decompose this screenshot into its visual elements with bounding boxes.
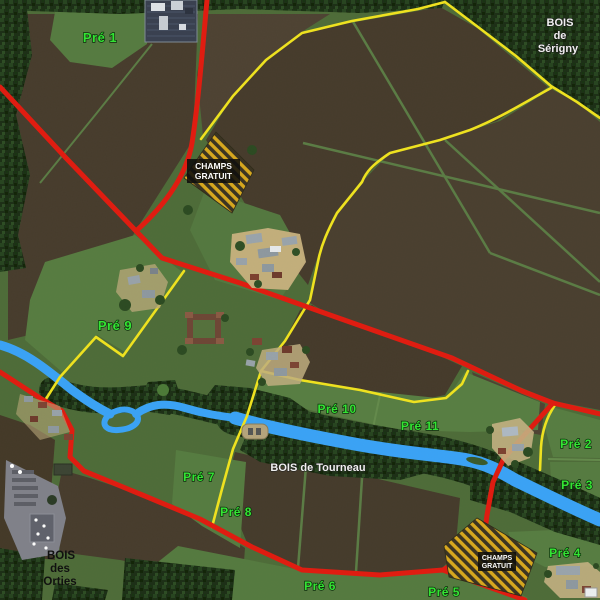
forest-label-orties-line1: BOIS bbox=[47, 550, 75, 562]
tree bbox=[302, 346, 310, 354]
forest-label-orties-line2: des bbox=[50, 563, 70, 575]
building bbox=[216, 338, 224, 344]
building bbox=[274, 368, 287, 376]
building bbox=[512, 444, 524, 451]
tree bbox=[292, 248, 300, 256]
field-label-pre-9: Pré 9 bbox=[98, 318, 132, 333]
building bbox=[290, 362, 299, 368]
tree bbox=[486, 426, 494, 434]
solar-farm bbox=[145, 0, 197, 42]
forest-label-serigny-line3: Sérigny bbox=[538, 43, 579, 55]
farm-map: CHAMPS GRATUIT CHAMPS GRATUIT Pré 1 Pré … bbox=[0, 0, 600, 600]
field-label-pre-6: Pré 6 bbox=[304, 579, 336, 593]
tree bbox=[177, 345, 187, 355]
tree bbox=[183, 205, 193, 215]
barn-dark bbox=[54, 464, 72, 475]
field-label-pre-2: Pré 2 bbox=[560, 437, 592, 451]
round-tree bbox=[157, 384, 169, 396]
sign-line: CHAMPS bbox=[195, 161, 232, 171]
building bbox=[566, 580, 578, 589]
field-label-pre-4: Pré 4 bbox=[549, 546, 581, 560]
building bbox=[159, 16, 168, 30]
building bbox=[30, 416, 38, 422]
building bbox=[171, 1, 183, 10]
building-white bbox=[585, 588, 597, 597]
sign-line: CHAMPS bbox=[482, 555, 513, 562]
tree bbox=[258, 378, 266, 386]
tree bbox=[246, 348, 254, 356]
building bbox=[185, 338, 193, 344]
barn bbox=[236, 258, 247, 265]
sign-line: GRATUIT bbox=[195, 171, 233, 181]
tree bbox=[593, 563, 599, 569]
paddock bbox=[242, 424, 268, 439]
tree bbox=[221, 314, 229, 322]
forest-label-serigny-line1: BOIS bbox=[547, 17, 574, 29]
building bbox=[502, 426, 519, 436]
field-label-pre-11: Pré 11 bbox=[401, 419, 439, 433]
tree bbox=[235, 241, 245, 251]
building bbox=[266, 352, 278, 360]
forest-label-tourneau: BOIS de Tourneau bbox=[270, 462, 365, 474]
building bbox=[270, 246, 281, 252]
tree bbox=[155, 295, 165, 305]
building bbox=[185, 312, 193, 318]
tree bbox=[254, 280, 262, 288]
hamlet-northwest bbox=[116, 264, 168, 312]
tree bbox=[47, 495, 57, 505]
building bbox=[38, 402, 47, 408]
tree bbox=[544, 570, 552, 578]
forest-label-orties-line3: Orties bbox=[43, 576, 76, 588]
building bbox=[250, 274, 259, 280]
tree bbox=[119, 299, 131, 311]
building bbox=[272, 272, 282, 278]
tree bbox=[511, 460, 519, 468]
building bbox=[150, 268, 158, 274]
building bbox=[179, 24, 186, 30]
building bbox=[24, 396, 33, 402]
building bbox=[151, 3, 165, 11]
field-label-pre-5: Pré 5 bbox=[428, 585, 460, 599]
field-label-pre-7: Pré 7 bbox=[183, 470, 215, 484]
building bbox=[30, 514, 54, 542]
tree bbox=[523, 447, 533, 457]
building bbox=[185, 8, 193, 14]
tree bbox=[136, 264, 144, 272]
field-label-pre-8: Pré 8 bbox=[220, 505, 252, 519]
barn bbox=[262, 264, 274, 272]
building bbox=[498, 448, 506, 454]
building bbox=[252, 338, 262, 345]
sign-line: GRATUIT bbox=[482, 563, 513, 570]
building bbox=[52, 410, 62, 416]
building bbox=[282, 346, 292, 353]
tree bbox=[247, 145, 257, 155]
field-label-pre-10: Pré 10 bbox=[317, 402, 356, 416]
field-label-pre-3: Pré 3 bbox=[561, 478, 593, 492]
building bbox=[64, 434, 73, 440]
building bbox=[142, 290, 155, 298]
forest-label-serigny-line2: de bbox=[554, 30, 567, 42]
building bbox=[556, 566, 580, 575]
field-label-pre-1: Pré 1 bbox=[83, 30, 117, 45]
building bbox=[48, 426, 59, 433]
